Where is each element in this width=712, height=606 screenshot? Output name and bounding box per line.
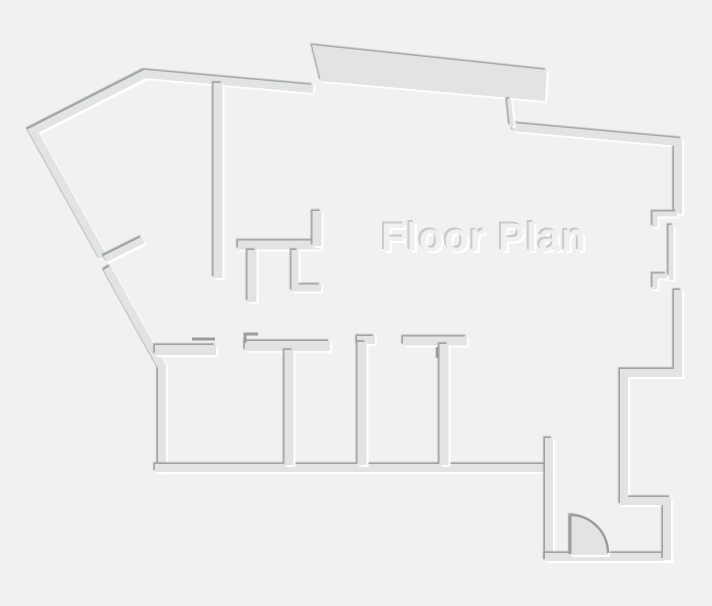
slab-connector-wall (509, 99, 512, 126)
entry-door (570, 515, 608, 555)
title-text: Floor Plan (381, 216, 587, 260)
nw-door-leaf (105, 240, 143, 259)
wall-outer-northeast (513, 127, 678, 214)
wall-outer-northwest (33, 74, 313, 257)
wall-closet-stub-b (295, 250, 321, 288)
floor-plan-drawing: Floor Plan Floor Plan Floor Plan (0, 0, 712, 606)
top-slab (312, 45, 547, 101)
floor-plan-title: Floor Plan Floor Plan Floor Plan (379, 214, 589, 262)
wall-vestibule-right-jog (624, 290, 678, 560)
window-jamb-top-bracket (655, 214, 677, 227)
window-jamb-bottom-bracket (655, 276, 667, 289)
floor-plan-canvas: Floor Plan Floor Plan Floor Plan (0, 0, 712, 606)
wall-outer-southwest (107, 268, 162, 472)
